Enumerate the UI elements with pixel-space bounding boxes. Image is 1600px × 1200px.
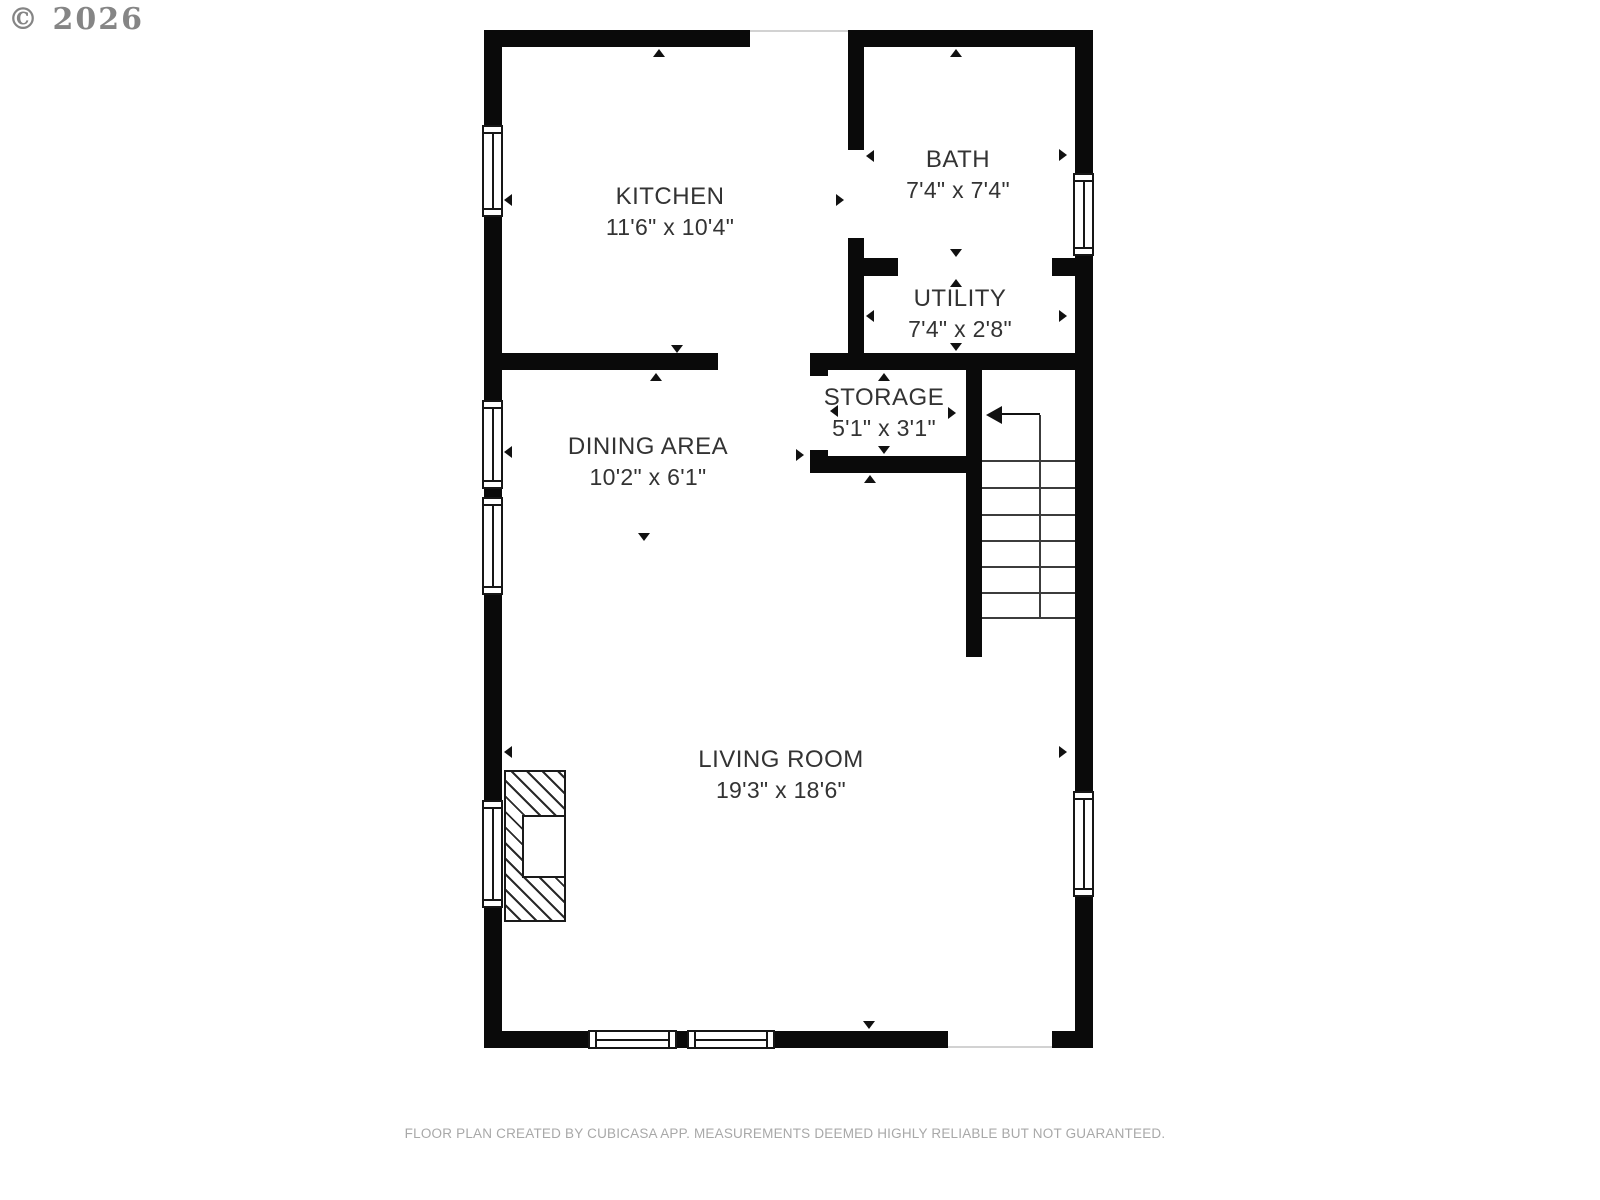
room-name: DINING AREA [523,432,773,462]
room-dimensions: 5'1" x 3'1" [784,413,984,443]
stair-tread [982,487,1075,489]
stair-direction-line [1002,413,1040,415]
kitchen-south-marker-icon [671,345,683,353]
window-dining-west-2 [482,497,503,595]
living-south-marker-icon [863,1021,875,1029]
window-living-west [482,800,503,908]
room-name: STORAGE [784,383,984,413]
room-name: UTILITY [850,284,1070,314]
wall-bath-utility-right-stub [1052,258,1075,276]
stair-tread [982,514,1075,516]
wall-storage-left-stub-top [810,353,828,376]
copyright-watermark: © 2026 [8,2,144,37]
stair-tread [982,617,1075,619]
fireplace-firebox [522,815,566,878]
stair-tread [982,592,1075,594]
kitchen-north-marker-icon [653,49,665,57]
window-kitchen-west [482,125,503,217]
wall-storage-bottom [810,456,982,473]
room-label-storage: STORAGE 5'1" x 3'1" [784,383,984,443]
room-label-dining: DINING AREA 10'2" x 6'1" [523,432,773,492]
living-west-marker-icon [504,746,512,758]
storage-south-marker-icon [878,446,890,454]
window-dining-west-1 [482,400,503,489]
room-name: LIVING ROOM [656,745,906,775]
utility-south-marker-icon [950,343,962,351]
storage-north-marker-icon [878,373,890,381]
stair-tread [982,540,1075,542]
bath-south-marker-icon [950,249,962,257]
dining-east-marker-icon [796,449,804,461]
room-dimensions: 7'4" x 2'8" [850,314,1070,344]
living-north-marker-icon [864,475,876,483]
room-dimensions: 7'4" x 7'4" [848,175,1068,205]
room-name: BATH [848,145,1068,175]
living-east-marker-icon [1059,746,1067,758]
window-bath-east [1073,173,1094,256]
kitchen-east-marker-icon [836,194,844,206]
room-label-kitchen: KITCHEN 11'6" x 10'4" [545,182,795,242]
room-label-living: LIVING ROOM 19'3" x 18'6" [656,745,906,805]
dining-south-marker-icon [638,533,650,541]
floor-plan-page: © 2026 [0,0,1600,1200]
dining-north-marker-icon [650,373,662,381]
window-living-east [1073,791,1094,897]
stair-tread [982,566,1075,568]
room-name: KITCHEN [545,182,795,212]
room-label-bath: BATH 7'4" x 7'4" [848,145,1068,205]
wall-bath-utility-left-stub [864,258,898,276]
stair-direction-arrow-icon [986,406,1002,424]
wall-kitchen-bath-upper [848,47,864,150]
room-label-utility: UTILITY 7'4" x 2'8" [850,284,1070,344]
door-opening-top [750,30,848,47]
disclaimer-text: FLOOR PLAN CREATED BY CUBICASA APP. MEAS… [0,1126,1570,1141]
kitchen-west-marker-icon [504,194,512,206]
door-opening-kitchen-dining [718,353,810,370]
window-living-south-2 [687,1030,775,1049]
room-dimensions: 19'3" x 18'6" [656,775,906,805]
door-opening-bottom [948,1031,1052,1048]
bath-north-marker-icon [950,49,962,57]
stair-tread [982,460,1075,462]
stair-center-rail [1039,415,1041,619]
room-dimensions: 10'2" x 6'1" [523,462,773,492]
dining-west-marker-icon [504,446,512,458]
room-dimensions: 11'6" x 10'4" [545,212,795,242]
window-living-south-1 [588,1030,677,1049]
